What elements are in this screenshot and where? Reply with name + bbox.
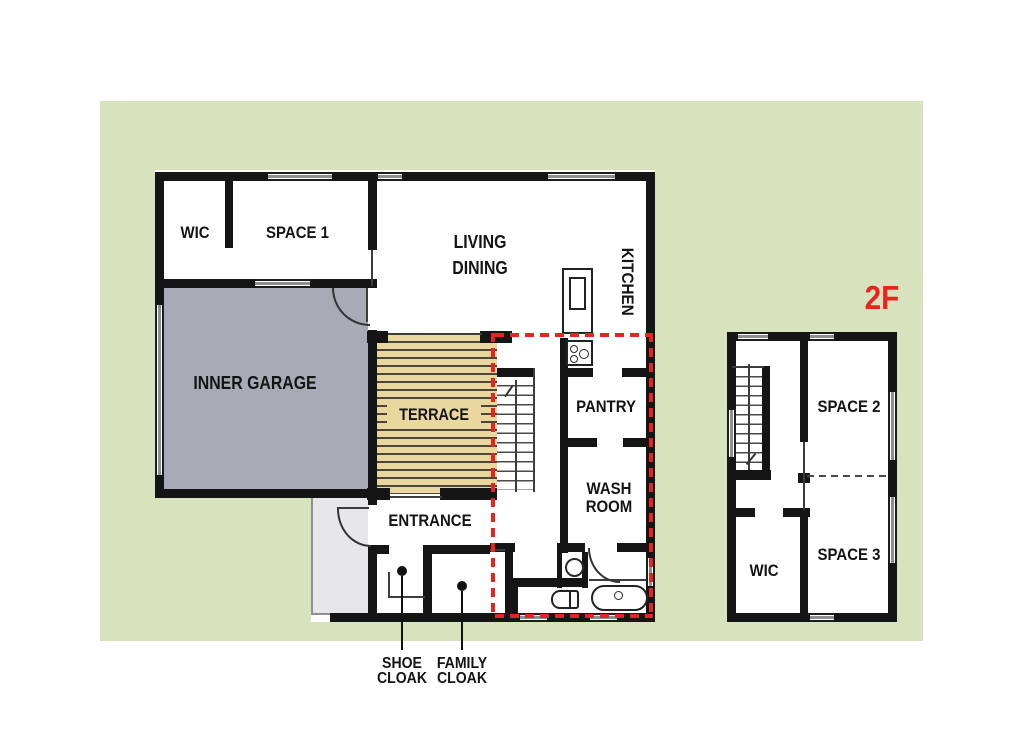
terrace-label-box: TERRACE <box>387 403 481 426</box>
window <box>378 172 402 181</box>
wall-segment <box>368 545 377 622</box>
room-label-inner-garage: INNER GARAGE <box>185 374 326 392</box>
wall-segment <box>888 563 897 622</box>
room-label-wic-2f: WIC <box>737 562 792 579</box>
window <box>727 410 736 457</box>
wall-segment <box>225 181 233 248</box>
wall-segment <box>888 332 897 392</box>
toilet-tank-line <box>569 592 571 607</box>
stove-icon <box>566 340 593 366</box>
family-cloak-leader-line <box>461 591 463 650</box>
callout-family-line2: CLOAK <box>432 671 492 687</box>
room-label-terrace: TERRACE <box>399 406 469 423</box>
callout-shoe-line2: CLOAK <box>374 671 430 687</box>
wall-segment <box>762 366 770 472</box>
wall-segment <box>617 543 646 552</box>
wall-segment <box>557 543 585 552</box>
wall-segment <box>423 545 490 554</box>
burner-icon <box>570 345 578 353</box>
wall-segment <box>440 488 497 500</box>
window <box>255 279 310 288</box>
wall-segment <box>510 578 587 587</box>
window <box>548 172 615 181</box>
floor-tag-2f: 2F <box>859 281 906 314</box>
thin-line <box>533 368 535 492</box>
room-label-dining: DINING <box>436 259 524 277</box>
wall-segment <box>367 331 388 343</box>
wall-segment <box>377 545 389 554</box>
wall-segment <box>800 341 808 442</box>
floor-plan-page: WIC SPACE 1 LIVING DINING KITCHEN INNER … <box>0 0 1024 745</box>
kitchen-counter-icon <box>562 268 593 334</box>
washbasin-icon <box>565 558 584 577</box>
thin-line <box>388 596 425 598</box>
bathtub-drain-icon <box>614 591 623 600</box>
window <box>810 613 834 622</box>
room-label-space2: SPACE 2 <box>811 398 887 415</box>
renovation-zone-dashed-boundary <box>495 614 653 618</box>
renovation-zone-dashed-boundary <box>495 333 653 337</box>
wall-segment <box>560 447 568 553</box>
room-label-entrance: ENTRANCE <box>384 512 476 529</box>
family-cloak-leader-dot <box>457 581 467 591</box>
wall-segment <box>568 368 593 377</box>
room-label-kitchen: KITCHEN <box>606 248 636 316</box>
room-label-space1: SPACE 1 <box>256 224 340 241</box>
thin-line <box>371 250 373 286</box>
shoe-cloak-leader-line <box>401 576 403 650</box>
stairs-1f-direction-line <box>515 380 517 492</box>
burner-icon <box>570 355 578 363</box>
space-partition-dashed-line <box>807 475 888 477</box>
room-label-space3: SPACE 3 <box>811 546 887 563</box>
room-label-wash: WASH <box>582 480 637 497</box>
wall-segment <box>497 368 533 377</box>
wall-segment <box>155 489 377 498</box>
thin-line <box>388 572 390 598</box>
toilet-icon <box>551 590 579 609</box>
wall-segment <box>783 508 810 517</box>
room-label-living: LIVING <box>436 233 524 251</box>
wall-segment <box>367 488 390 500</box>
burner-icon <box>579 349 589 359</box>
window <box>888 497 897 563</box>
window <box>738 332 768 341</box>
thin-line <box>390 496 442 498</box>
wall-segment <box>727 508 755 517</box>
wall-segment <box>560 438 597 447</box>
wall-segment <box>505 545 513 613</box>
wall-segment <box>368 330 377 497</box>
wall-segment <box>423 545 432 622</box>
window <box>155 305 164 475</box>
thin-line <box>803 442 805 510</box>
wall-segment <box>800 517 808 613</box>
renovation-zone-dashed-boundary <box>649 333 653 618</box>
window <box>888 392 897 460</box>
wall-segment <box>368 181 377 250</box>
thin-line <box>388 333 482 335</box>
wall-segment <box>623 438 646 447</box>
window <box>810 332 834 341</box>
renovation-zone-dashed-boundary <box>491 333 495 618</box>
wall-segment <box>622 368 646 377</box>
thin-line <box>732 366 764 368</box>
wall-segment <box>888 460 897 497</box>
shoe-cloak-leader-dot <box>397 566 407 576</box>
room-label-room: ROOM <box>582 498 637 515</box>
bathtub-icon <box>591 585 648 611</box>
window <box>268 172 332 181</box>
kitchen-sink-icon <box>569 277 586 310</box>
room-label-pantry: PANTRY <box>573 398 640 415</box>
room-label-wic-1f: WIC <box>168 224 223 241</box>
